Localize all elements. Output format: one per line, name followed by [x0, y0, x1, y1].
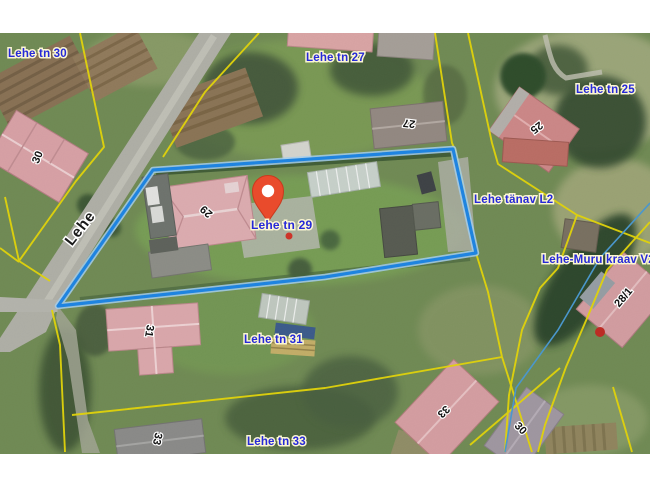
aerial-map[interactable]: Lehe Lehe tn 30 Lehe tn 27 Lehe tn 25 Le…: [0, 33, 650, 454]
building-number-31: 31: [142, 324, 156, 338]
map-viewport[interactable]: Lehe Lehe tn 30 Lehe tn 27 Lehe tn 25 Le…: [0, 33, 650, 454]
label-lehe-tn-33: Lehe tn 33: [247, 436, 306, 448]
label-lehe-tn-25: Lehe tn 25: [576, 84, 635, 96]
texture-overlay: [0, 33, 650, 454]
label-lehe-tanav-l2: Lehe tänav L2: [474, 194, 553, 206]
pin-label: Lehe tn 29: [251, 218, 312, 232]
pin-hole: [262, 185, 274, 197]
building-number-33-sw: 33: [150, 432, 164, 446]
building-number-27: 27: [402, 116, 416, 129]
label-lehe-tn-31: Lehe tn 31: [244, 334, 303, 346]
label-lehe-muru-kraav-v2: Lehe-Muru kraav V2: [542, 254, 650, 266]
label-lehe-tn-30: Lehe tn 30: [8, 48, 67, 60]
map-screenshot: Lehe Lehe tn 30 Lehe tn 27 Lehe tn 25 Le…: [0, 0, 650, 487]
label-lehe-tn-27: Lehe tn 27: [306, 52, 365, 64]
